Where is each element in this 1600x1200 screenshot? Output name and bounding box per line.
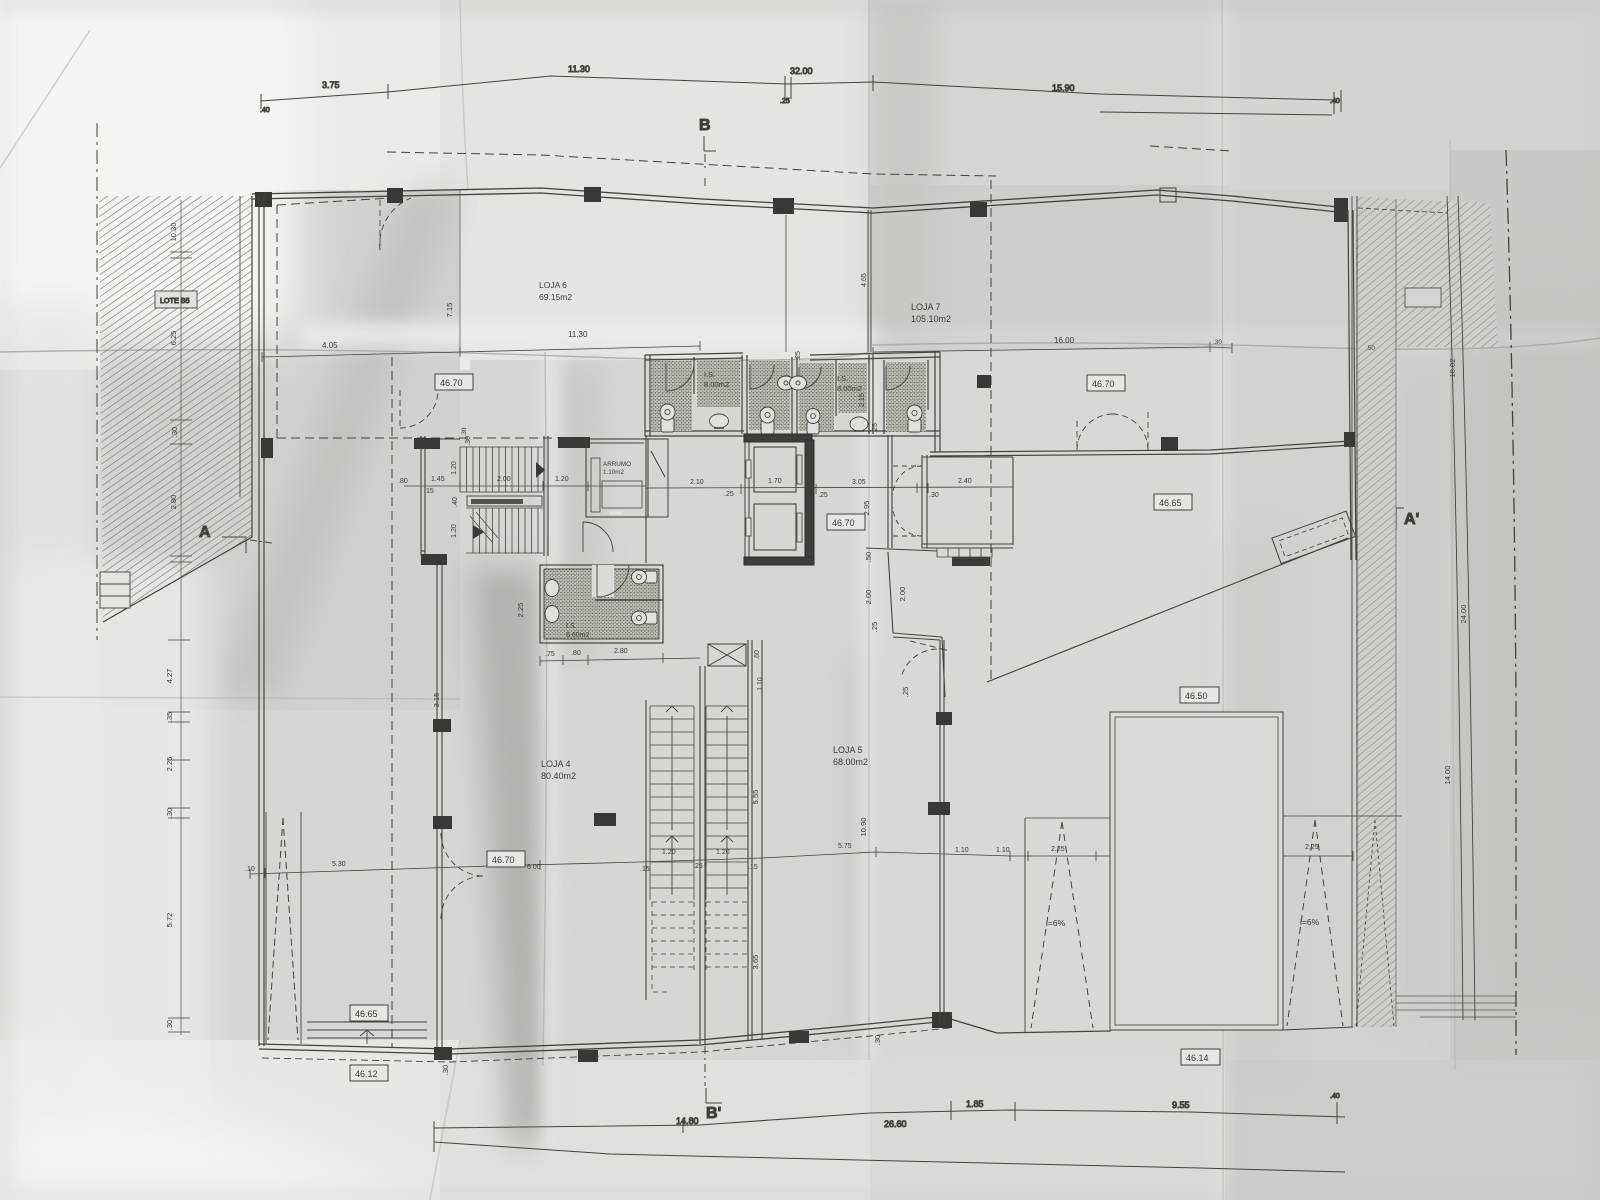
svg-text:8.00m2: 8.00m2 [837,384,862,393]
svg-text:.15: .15 [748,864,758,871]
svg-text:2.15: 2.15 [859,393,866,407]
svg-text:1.20: 1.20 [451,461,458,475]
svg-text:105.10m2: 105.10m2 [911,314,951,324]
svg-text:.50: .50 [1366,345,1375,352]
svg-text:.40: .40 [452,497,459,507]
svg-text:10.02: 10.02 [1448,359,1457,378]
svg-text:.40: .40 [1330,1093,1340,1100]
svg-text:.30: .30 [1213,339,1222,346]
svg-text:46.12: 46.12 [355,1069,378,1079]
svg-text:.25: .25 [872,423,879,433]
svg-text:7.15: 7.15 [445,303,454,318]
svg-text:.25: .25 [724,491,734,498]
svg-text:6.00: 6.00 [527,864,541,871]
svg-text:46.50: 46.50 [1185,691,1208,701]
svg-text:10.30: 10.30 [169,223,178,242]
svg-text:2.00: 2.00 [898,587,907,602]
svg-text:2.25: 2.25 [516,603,525,618]
svg-text:16.00: 16.00 [1054,336,1075,345]
svg-text:i=6%: i=6% [1046,918,1066,928]
svg-text:LOJA 4: LOJA 4 [541,759,571,769]
svg-text:3.15: 3.15 [432,693,441,708]
svg-text:2.40: 2.40 [958,478,972,485]
svg-text:1.10: 1.10 [996,847,1010,854]
svg-text:1.20: 1.20 [716,849,730,856]
svg-text:.25: .25 [693,863,703,870]
svg-text:.15: .15 [424,488,434,495]
svg-text:68.00m2: 68.00m2 [833,757,868,767]
svg-text:B': B' [706,1105,721,1122]
svg-text:.30: .30 [873,1035,882,1045]
svg-text:ARRUMO: ARRUMO [603,461,631,468]
svg-text:3.65: 3.65 [751,955,760,970]
svg-text:1.10: 1.10 [757,677,764,691]
svg-text:1.10m2: 1.10m2 [603,469,625,476]
svg-text:46.70: 46.70 [832,518,855,528]
svg-text:.25: .25 [901,687,910,697]
svg-text:3.05: 3.05 [852,479,866,486]
svg-text:.10: .10 [245,866,255,873]
svg-text:.25: .25 [818,492,828,499]
svg-text:LOJA 7: LOJA 7 [911,302,941,312]
svg-text:26.60: 26.60 [884,1119,907,1129]
svg-text:6.60m2: 6.60m2 [566,632,589,639]
svg-text:8.00m2: 8.00m2 [704,380,729,389]
svg-text:2.00: 2.00 [864,590,873,605]
svg-text:15.90: 15.90 [1052,83,1075,93]
svg-text:.30: .30 [461,427,468,436]
svg-text:.25: .25 [795,351,802,361]
svg-text:LOJA 6: LOJA 6 [539,280,567,290]
svg-text:1.20: 1.20 [555,476,569,483]
svg-text:i=6%: i=6% [1300,917,1320,927]
svg-text:11.30: 11.30 [568,64,590,74]
svg-text:1.10: 1.10 [955,847,969,854]
svg-text:.80: .80 [571,650,581,657]
svg-text:B: B [699,117,711,134]
svg-text:1.85: 1.85 [966,1099,984,1109]
svg-text:.25: .25 [780,98,790,105]
svg-text:5.55: 5.55 [751,790,760,805]
svg-text:4.27: 4.27 [165,669,174,684]
svg-text:LOJA 5: LOJA 5 [833,745,863,755]
svg-text:.40: .40 [260,107,270,114]
svg-text:24.00: 24.00 [1459,605,1468,624]
svg-text:.30: .30 [165,808,174,818]
svg-text:.30: .30 [465,436,472,446]
svg-text:2.80: 2.80 [169,495,178,510]
svg-text:5.30: 5.30 [332,861,346,868]
svg-text:.30: .30 [929,492,939,499]
svg-text:I.S.: I.S. [704,370,715,379]
svg-text:.30: .30 [441,1065,450,1075]
svg-text:46.65: 46.65 [1159,498,1182,508]
svg-text:80.40m2: 80.40m2 [541,771,576,781]
svg-text:2.00: 2.00 [497,476,511,483]
svg-text:2.80: 2.80 [614,648,628,655]
svg-text:14.00: 14.00 [1443,766,1452,785]
svg-text:I.S.: I.S. [566,623,577,630]
svg-text:.25: .25 [870,622,879,632]
svg-text:46.70: 46.70 [440,378,463,388]
svg-text:2.25: 2.25 [165,757,174,772]
svg-text:3.75: 3.75 [322,80,340,90]
svg-text:LOTE B5: LOTE B5 [160,296,190,305]
svg-text:46.70: 46.70 [1092,379,1115,389]
svg-text:.50: .50 [864,552,873,562]
svg-text:5.75: 5.75 [838,843,852,850]
svg-text:5.72: 5.72 [165,913,174,928]
svg-text:6.25: 6.25 [169,331,178,346]
svg-text:.75: .75 [545,651,555,658]
svg-text:A': A' [1404,511,1419,528]
svg-text:.15: .15 [640,866,650,873]
svg-text:32.00: 32.00 [790,66,813,76]
svg-text:1.20: 1.20 [662,849,676,856]
svg-text:1.20: 1.20 [451,524,458,538]
svg-text:I.S.: I.S. [837,374,848,383]
svg-text:.40: .40 [1330,98,1340,105]
svg-text:.30: .30 [170,427,179,437]
svg-text:14.80: 14.80 [676,1116,699,1126]
svg-text:2.95: 2.95 [862,501,871,516]
svg-text:69.15m2: 69.15m2 [539,292,572,302]
svg-text:.80: .80 [398,478,408,485]
svg-text:10.90: 10.90 [859,818,868,837]
svg-text:46.14: 46.14 [1186,1053,1209,1063]
svg-text:.60: .60 [754,650,761,660]
svg-text:.35: .35 [165,712,174,722]
svg-text:1.45: 1.45 [431,476,445,483]
svg-text:46.70: 46.70 [492,855,515,865]
svg-text:1.70: 1.70 [768,478,782,485]
svg-text:.30: .30 [165,1020,174,1030]
svg-text:9.55: 9.55 [1172,1100,1190,1110]
svg-text:4.65: 4.65 [861,273,868,287]
svg-text:4.05: 4.05 [322,341,338,350]
svg-text:46.65: 46.65 [355,1009,378,1019]
svg-text:11.30: 11.30 [568,330,588,339]
svg-text:2.10: 2.10 [690,479,704,486]
